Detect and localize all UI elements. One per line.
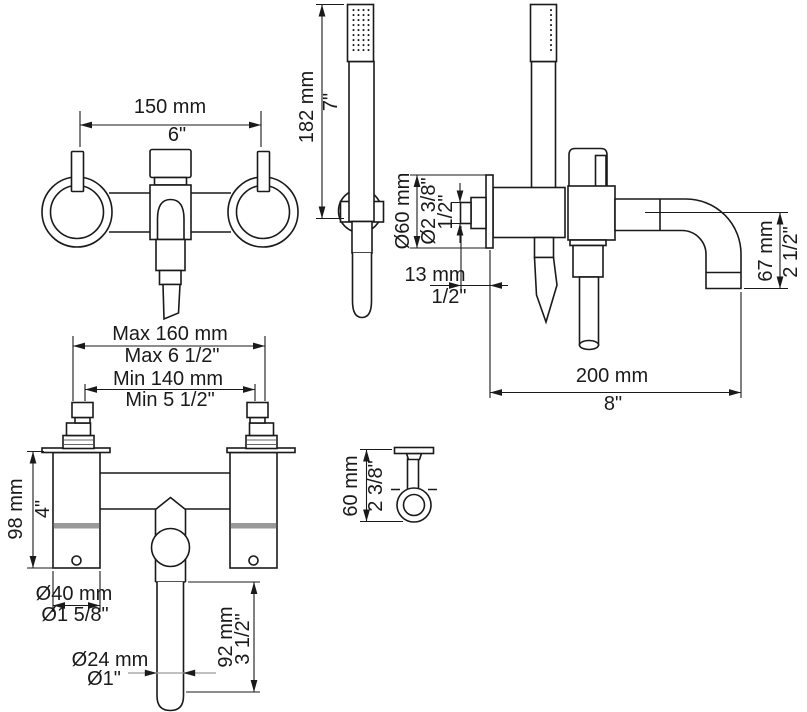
wall-flange [486,175,493,248]
dim-install-spout-len-in: 3 1/2" [232,584,254,694]
dim-side-offset-in: 1/2" [419,286,479,308]
dim-bracket-height-mm: 60 mm [340,431,362,541]
left-handle [72,152,84,192]
down-spout-tube [157,582,184,711]
dim-install-max-in: Max 6 1/2" [92,345,252,367]
dim-install-flange-mm: Ø40 mm [19,583,129,605]
bracket-wall-plate [395,448,434,454]
shower-head-side [531,5,557,62]
dim-install-max-mm: Max 160 mm [90,323,250,345]
dim-front-width-mm: 150 mm [110,96,230,118]
bracket-view-drawing [391,448,437,523]
hand-shower-drawing [339,5,384,318]
right-eccentric-union [247,403,268,418]
dim-install-height-mm: 98 mm [5,454,27,564]
left-connection-body [53,453,100,569]
right-handle [258,152,270,192]
dim-bracket-height-in: 2 3/8" [365,431,387,541]
dim-side-drop-in: 2 1/2" [780,197,802,307]
dim-install-height-in: 4" [32,479,54,539]
dim-install-min-in: Min 5 1/2" [90,389,250,411]
dim-side-reach-in: 8" [583,393,643,415]
side-view-drawing [461,5,742,350]
dim-side-flange-mm: Ø60 mm [392,156,414,266]
technical-drawing-canvas: 150 mm 6" 182 mm 7" Ø60 mm Ø2 3/8" 1/2" … [0,0,807,712]
dim-shower-length-mm: 182 mm [296,52,318,162]
mixer-lever-blade [163,285,180,320]
dim-side-connection-in: 1/2" [435,182,457,242]
dim-install-flange-in: Ø1 5/8" [20,604,130,626]
dim-side-reach-mm: 200 mm [552,365,672,387]
dim-side-offset-mm: 13 mm [380,264,490,286]
dim-install-spout-dia-in: Ø1" [74,668,134,690]
dim-shower-length-in: 7" [320,72,342,132]
front-view-drawing [42,150,298,320]
shower-head [348,5,374,62]
lever-knob [152,529,190,567]
right-connection-body [230,453,277,569]
dim-side-drop-mm: 67 mm [755,196,777,306]
dim-install-min-mm: Min 140 mm [88,368,248,390]
dim-front-width-in: 6" [147,124,207,146]
